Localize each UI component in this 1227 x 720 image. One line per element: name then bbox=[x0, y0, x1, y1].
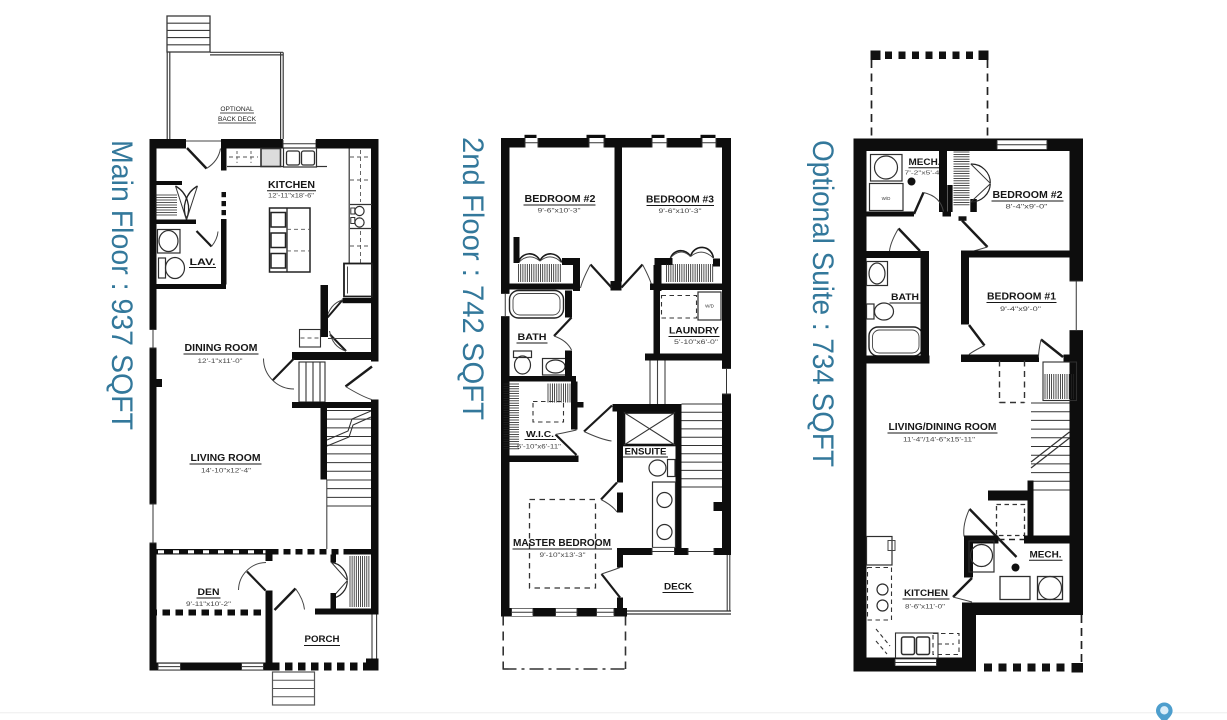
svg-text:BATH: BATH bbox=[518, 332, 547, 343]
svg-text:9'-11"x10'-2": 9'-11"x10'-2" bbox=[186, 601, 231, 608]
svg-text:Optional Suite : 734 SQFT: Optional Suite : 734 SQFT bbox=[806, 140, 839, 467]
svg-text:W/D: W/D bbox=[705, 304, 714, 309]
svg-text:MECH.: MECH. bbox=[1030, 550, 1062, 560]
svg-text:MECH.: MECH. bbox=[909, 157, 941, 167]
svg-text:9'-10"x13'-3": 9'-10"x13'-3" bbox=[540, 552, 586, 559]
svg-text:BEDROOM #2: BEDROOM #2 bbox=[525, 194, 596, 205]
svg-text:9'-4"x9'-0": 9'-4"x9'-0" bbox=[1000, 306, 1041, 313]
svg-text:9'-6"x10'-3": 9'-6"x10'-3" bbox=[659, 208, 702, 215]
svg-text:BEDROOM #2: BEDROOM #2 bbox=[993, 190, 1063, 201]
svg-text:5'-10"x6'-0": 5'-10"x6'-0" bbox=[674, 340, 718, 346]
svg-text:KITCHEN: KITCHEN bbox=[268, 179, 315, 191]
svg-text:BEDROOM #1: BEDROOM #1 bbox=[987, 292, 1056, 303]
svg-text:7'-2"x5'-4": 7'-2"x5'-4" bbox=[905, 171, 943, 177]
svg-text:W.I.C.: W.I.C. bbox=[526, 429, 554, 439]
svg-text:DECK: DECK bbox=[664, 582, 692, 593]
svg-text:8'-6"x11'-0": 8'-6"x11'-0" bbox=[905, 604, 945, 611]
svg-text:KITCHEN: KITCHEN bbox=[904, 588, 948, 599]
svg-text:9'-6"x10'-3": 9'-6"x10'-3" bbox=[538, 208, 581, 215]
svg-text:MASTER BEDROOM: MASTER BEDROOM bbox=[513, 538, 611, 549]
svg-text:ENSUITE: ENSUITE bbox=[625, 447, 667, 457]
svg-text:W/D: W/D bbox=[882, 196, 891, 201]
svg-text:5'-10"x6'-11": 5'-10"x6'-11" bbox=[517, 445, 561, 451]
svg-text:8'-4"x9'-0": 8'-4"x9'-0" bbox=[1006, 204, 1048, 211]
svg-text:PORCH: PORCH bbox=[305, 634, 340, 645]
svg-text:OPTIONAL: OPTIONAL bbox=[220, 106, 254, 113]
svg-text:LIVING ROOM: LIVING ROOM bbox=[191, 452, 261, 464]
svg-text:14'-10"x12'-4": 14'-10"x12'-4" bbox=[201, 468, 251, 475]
svg-text:LAV.: LAV. bbox=[190, 257, 216, 268]
svg-text:LAUNDRY: LAUNDRY bbox=[669, 326, 720, 337]
svg-text:11'-4"/14'-6"x15'-11": 11'-4"/14'-6"x15'-11" bbox=[903, 437, 975, 444]
svg-text:12'-1"x11'-0": 12'-1"x11'-0" bbox=[198, 358, 243, 365]
svg-text:LIVING/DINING ROOM: LIVING/DINING ROOM bbox=[889, 422, 997, 433]
svg-text:BACK DECK: BACK DECK bbox=[218, 116, 257, 123]
svg-text:12'-11"x18'-6": 12'-11"x18'-6" bbox=[268, 193, 314, 200]
svg-text:BATH: BATH bbox=[891, 292, 919, 302]
svg-text:DEN: DEN bbox=[198, 587, 220, 598]
svg-text:DINING ROOM: DINING ROOM bbox=[185, 342, 258, 354]
svg-text:BEDROOM #3: BEDROOM #3 bbox=[646, 195, 714, 206]
svg-text:Main Floor : 937 SQFT: Main Floor : 937 SQFT bbox=[105, 140, 138, 430]
svg-text:2nd Floor : 742 SQFT: 2nd Floor : 742 SQFT bbox=[456, 137, 489, 420]
